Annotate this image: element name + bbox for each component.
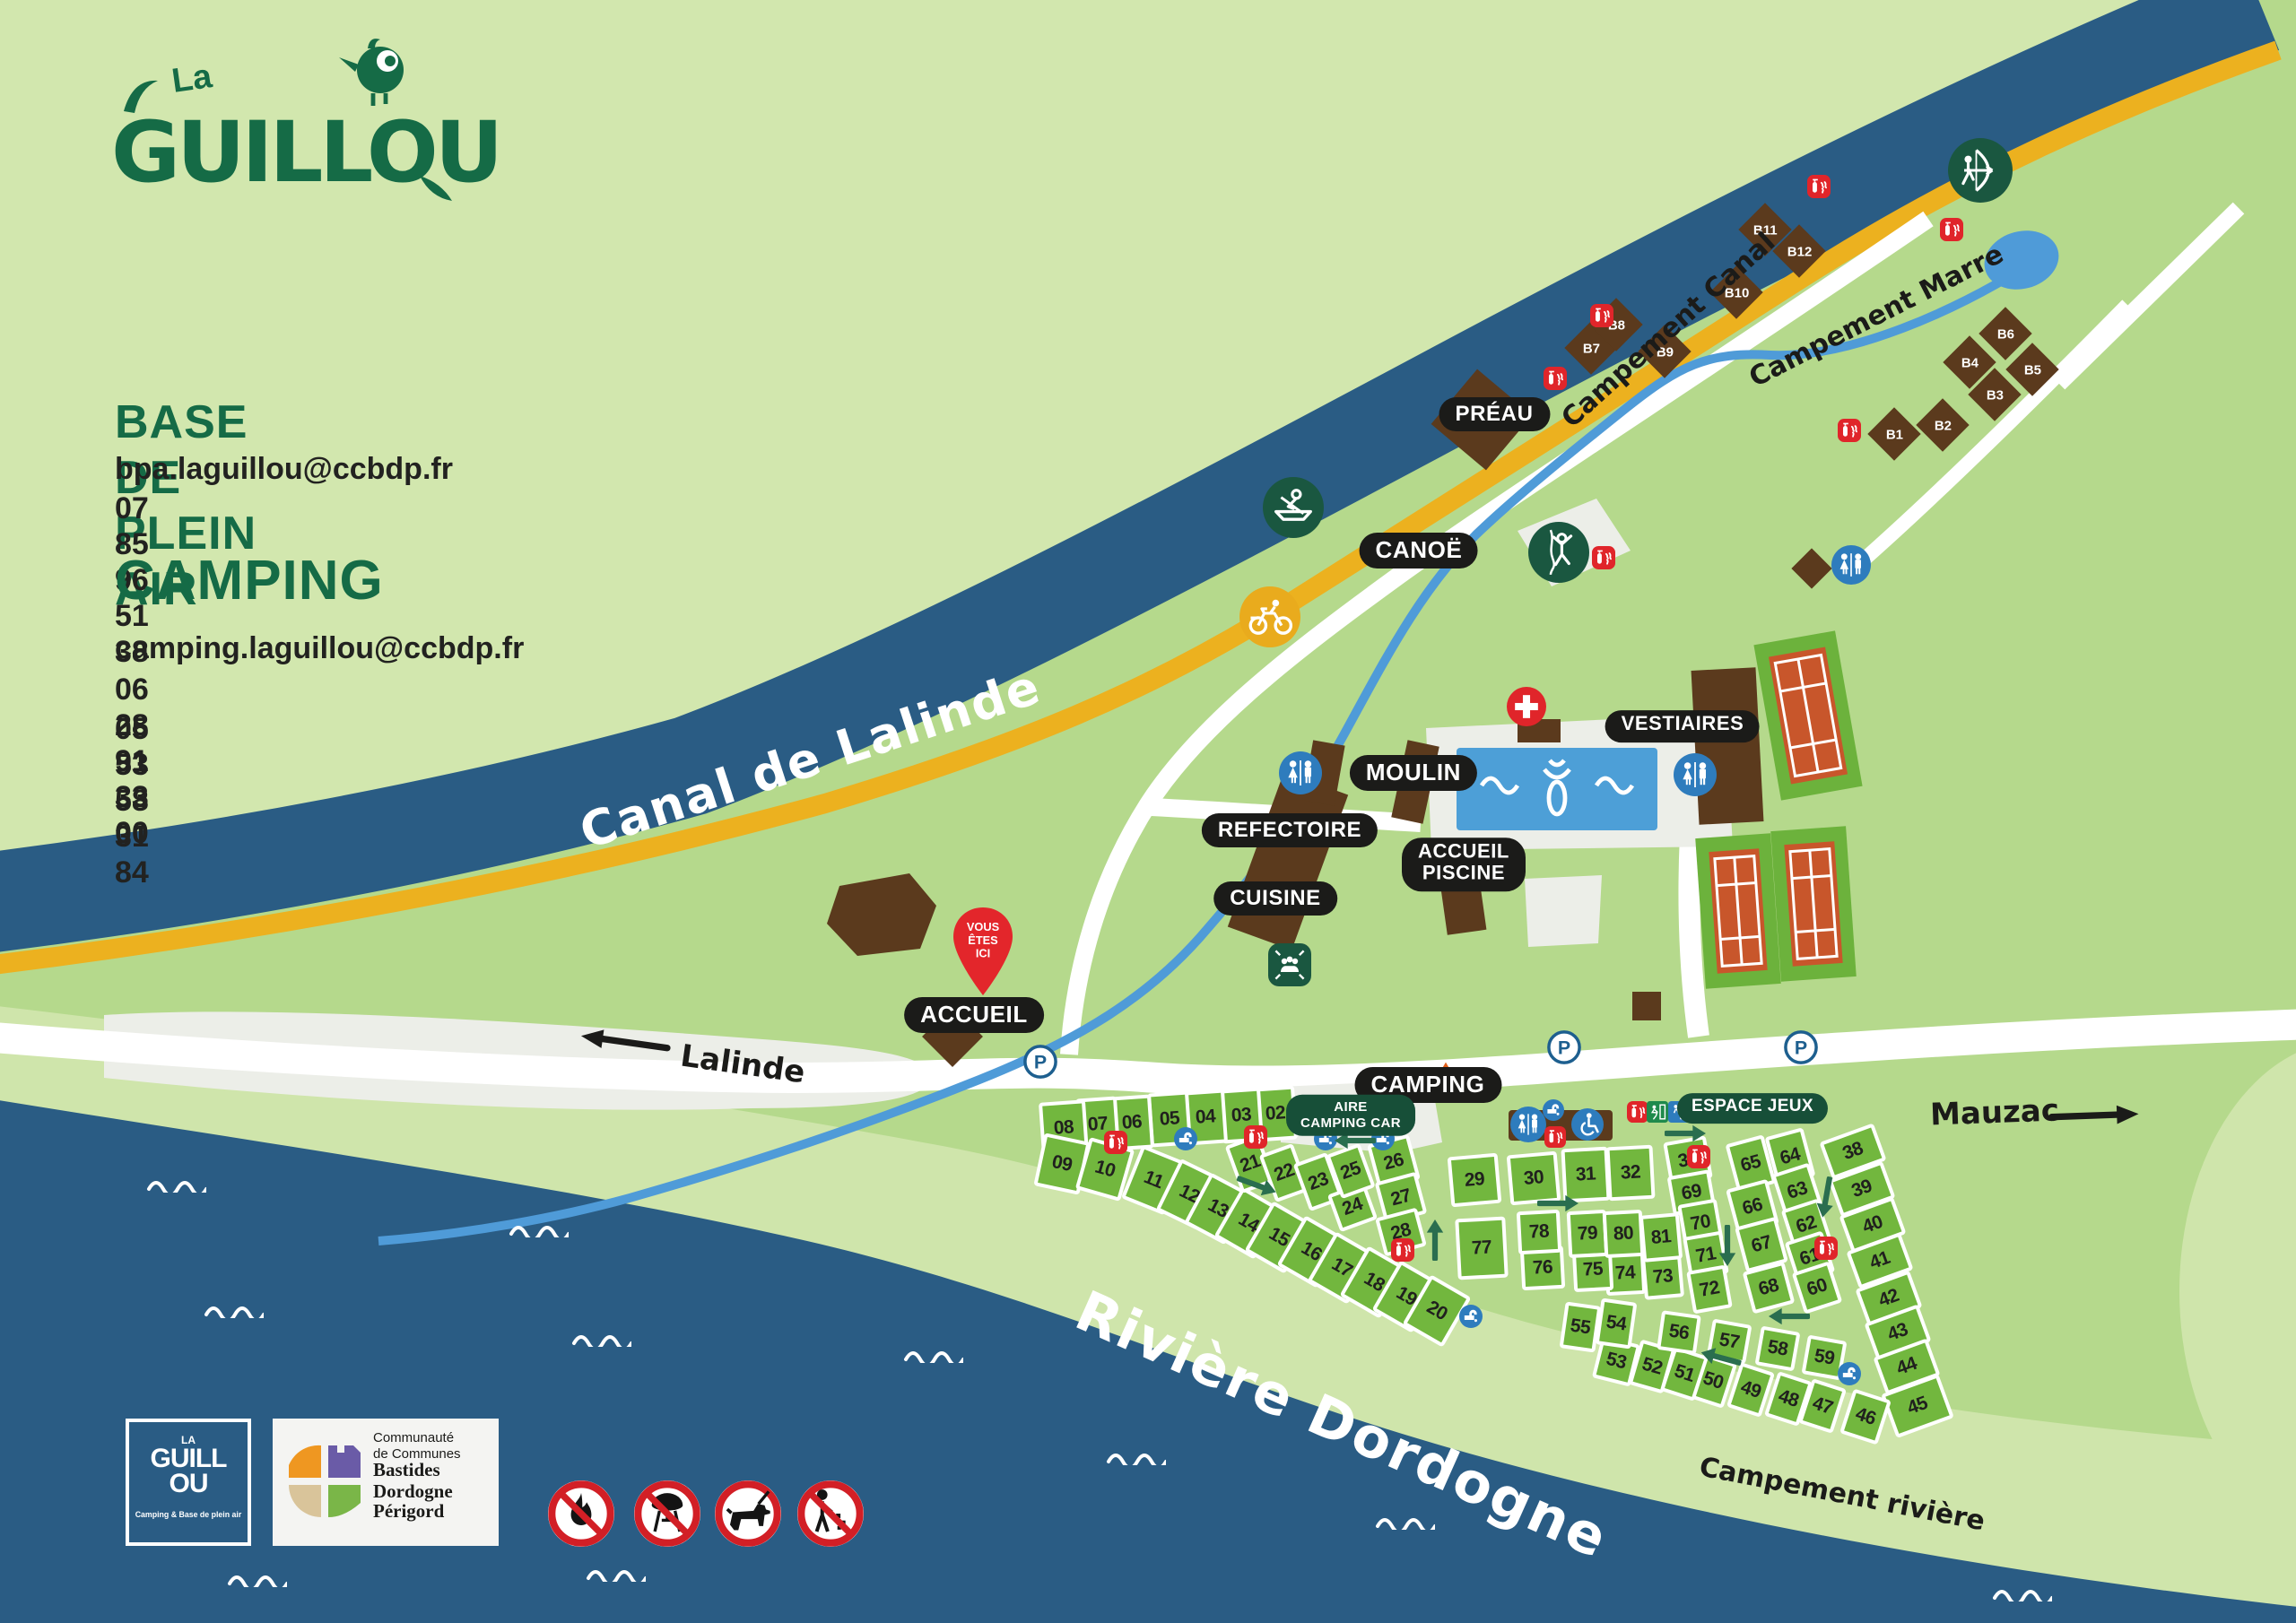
camping-plot-29: 29 xyxy=(1448,1153,1502,1208)
emergency-exit-icon xyxy=(1647,1101,1668,1123)
route-arrow xyxy=(1813,1175,1839,1220)
svg-text:ICI: ICI xyxy=(976,947,990,960)
fire-extinguisher-icon xyxy=(1544,367,1567,390)
route-arrow xyxy=(1665,1124,1708,1143)
plot-number: 45 xyxy=(1904,1393,1930,1419)
area-label: Campement rivière xyxy=(1697,1450,1987,1537)
plot-number: 51 xyxy=(1672,1360,1698,1387)
banner-espace-jeux: ESPACE JEUX xyxy=(1677,1093,1828,1124)
fire-extinguisher-icon xyxy=(1391,1238,1414,1262)
camping-plot-32: 32 xyxy=(1605,1145,1655,1202)
svg-text:VOUS: VOUS xyxy=(967,920,1000,933)
direction-label: Lalinde xyxy=(678,1038,807,1091)
route-arrow xyxy=(1767,1306,1810,1326)
direction-arrow xyxy=(577,1024,673,1060)
fire-extinguisher-icon xyxy=(1807,175,1831,198)
svg-text:P: P xyxy=(1558,1037,1570,1059)
guillou-logo-tagline: Camping & Base de plein air xyxy=(129,1509,248,1518)
wc-icon xyxy=(1510,1107,1546,1142)
camping-plot-58: 58 xyxy=(1755,1326,1801,1372)
wave-mark xyxy=(1991,1584,2052,1601)
cycling-icon xyxy=(1239,586,1300,647)
pitch-number: B5 xyxy=(2023,361,2040,378)
camping-plot-54: 54 xyxy=(1596,1298,1638,1349)
fire-extinguisher-icon xyxy=(1244,1125,1267,1149)
plot-number: 10 xyxy=(1092,1156,1118,1182)
camping-plot-56: 56 xyxy=(1657,1310,1701,1355)
plot-number: 79 xyxy=(1577,1222,1597,1245)
pitch-number: B7 xyxy=(1582,340,1599,356)
ccbdp-text: Communauté de Communes Bastides Dordogne… xyxy=(373,1431,461,1524)
wave-mark xyxy=(585,1564,646,1582)
plot-number: 76 xyxy=(1532,1256,1552,1279)
wave-mark xyxy=(203,1300,264,1318)
pitch-number: B12 xyxy=(1787,243,1812,259)
archery-icon xyxy=(1948,138,2013,203)
bpa-email: bpa.laguillou@ccbdp.fr xyxy=(115,452,453,488)
fire-extinguisher-icon xyxy=(1627,1101,1648,1123)
plot-number: 44 xyxy=(1893,1353,1919,1380)
plot-number: 29 xyxy=(1464,1168,1485,1192)
water-tap-icon xyxy=(1174,1127,1197,1150)
plot-number: 43 xyxy=(1884,1319,1910,1346)
wc-icon xyxy=(1674,753,1717,796)
plot-number: 50 xyxy=(1700,1367,1726,1394)
plot-number: 80 xyxy=(1613,1222,1633,1245)
plot-number: 03 xyxy=(1231,1104,1252,1126)
route-arrow xyxy=(1425,1218,1445,1261)
ccbdp-line5: Périgord xyxy=(373,1504,461,1524)
plot-number: 47 xyxy=(1810,1393,1836,1419)
plot-number: 27 xyxy=(1388,1185,1413,1211)
plot-number: 60 xyxy=(1805,1274,1831,1301)
climbing-icon xyxy=(1528,522,1589,583)
ccbdp-line2: de Communes xyxy=(373,1446,461,1462)
water-label: Canal de Lalinde xyxy=(574,660,1048,862)
direction-label: Mauzac xyxy=(1929,1094,2059,1134)
ccbdp-line1: Communauté xyxy=(373,1431,461,1446)
plot-number: 40 xyxy=(1859,1211,1885,1238)
plot-number: 59 xyxy=(1813,1345,1836,1369)
wave-mark xyxy=(570,1329,631,1347)
communaute-communes-logo: Communauté de Communes Bastides Dordogne… xyxy=(273,1419,499,1546)
svg-text:P: P xyxy=(1034,1052,1047,1073)
plot-number: 70 xyxy=(1689,1211,1712,1235)
plot-number: 26 xyxy=(1381,1150,1406,1176)
label-cuisine: CUISINE xyxy=(1213,881,1337,916)
camping-plot-77: 77 xyxy=(1455,1217,1508,1280)
camping-plot-55: 55 xyxy=(1560,1301,1602,1352)
meeting-point-icon xyxy=(1268,943,1311,986)
plot-number: 39 xyxy=(1848,1176,1874,1202)
plot-number: 73 xyxy=(1652,1265,1674,1289)
plot-number: 46 xyxy=(1853,1403,1879,1430)
parking-icon: P xyxy=(1023,1045,1057,1079)
label-accueil: ACCUEIL xyxy=(904,997,1044,1033)
wave-mark xyxy=(1374,1512,1435,1530)
you-are-here-pin: VOUS ÊTES ICI xyxy=(951,907,1015,997)
plot-number: 77 xyxy=(1471,1237,1492,1259)
fire-extinguisher-icon xyxy=(1838,419,1861,442)
plot-number: 66 xyxy=(1740,1194,1765,1220)
label-pr-au: PRÉAU xyxy=(1439,397,1549,431)
rowing-icon xyxy=(1263,477,1324,538)
plot-number: 58 xyxy=(1766,1336,1789,1360)
map-overlay: 0203040506070809101112131415161718192021… xyxy=(0,0,2296,1623)
fire-extinguisher-icon xyxy=(1590,304,1613,327)
plot-number: 42 xyxy=(1875,1285,1901,1312)
camping-email: camping.laguillou@ccbdp.fr xyxy=(115,631,524,667)
svg-text:P: P xyxy=(1795,1037,1807,1059)
no-littering-icon xyxy=(797,1480,864,1547)
plot-number: 55 xyxy=(1569,1315,1591,1340)
camping-plot-72: 72 xyxy=(1686,1265,1733,1315)
plot-number: 31 xyxy=(1575,1163,1596,1185)
plot-number: 49 xyxy=(1738,1376,1764,1403)
label-refectoire: REFECTOIRE xyxy=(1202,813,1378,847)
plot-number: 09 xyxy=(1050,1151,1074,1176)
label-vestiaires: VESTIAIRES xyxy=(1605,710,1761,742)
camping-plot-78: 78 xyxy=(1517,1210,1561,1254)
water-tap-icon xyxy=(1543,1099,1564,1121)
wave-mark xyxy=(1105,1447,1166,1465)
route-arrow xyxy=(1537,1193,1580,1213)
no-barbecue-icon xyxy=(634,1480,700,1547)
plot-number: 75 xyxy=(1582,1258,1603,1280)
plot-number: 72 xyxy=(1698,1277,1721,1301)
plot-number: 20 xyxy=(1422,1297,1450,1325)
plot-number: 38 xyxy=(1839,1138,1865,1165)
camping-plot-80: 80 xyxy=(1603,1210,1645,1258)
plot-number: 23 xyxy=(1305,1168,1331,1195)
water-tap-icon xyxy=(1838,1362,1861,1385)
fire-extinguisher-icon xyxy=(1940,218,1963,241)
handicap-icon xyxy=(1571,1108,1604,1141)
fire-extinguisher-icon xyxy=(1592,546,1615,569)
label-cano-: CANOË xyxy=(1360,533,1479,568)
plot-number: 52 xyxy=(1639,1353,1665,1379)
plot-number: 74 xyxy=(1614,1262,1635,1284)
plot-number: 71 xyxy=(1694,1243,1718,1267)
pitch-number: B1 xyxy=(1885,426,1902,442)
wave-mark xyxy=(226,1569,287,1587)
plot-number: 78 xyxy=(1528,1220,1549,1243)
ccbdp-line4: Dordogne xyxy=(373,1483,461,1504)
parking-icon: P xyxy=(1784,1030,1818,1064)
plot-number: 54 xyxy=(1605,1312,1627,1336)
label-moulin: MOULIN xyxy=(1350,755,1477,791)
wc-icon xyxy=(1831,545,1871,585)
guillou-logo-line2: OU xyxy=(129,1473,248,1499)
camping-phone-2: 05 53 58 31 84 xyxy=(115,712,149,891)
water-label: Rivière Dordogne xyxy=(1066,1280,1618,1573)
plot-number: 41 xyxy=(1866,1247,1892,1274)
camp-pitch-B1: B1 xyxy=(1867,407,1920,460)
plot-number: 48 xyxy=(1776,1385,1802,1412)
pitch-number: B2 xyxy=(1934,417,1951,433)
pitch-number: B3 xyxy=(1986,386,2003,403)
banner-aire-camping-car: AIRE CAMPING CAR xyxy=(1286,1095,1415,1137)
fire-extinguisher-icon xyxy=(1814,1237,1838,1260)
plot-number: 11 xyxy=(1141,1167,1166,1193)
wc-icon xyxy=(1279,751,1322,794)
plot-number: 81 xyxy=(1650,1226,1672,1249)
route-arrow xyxy=(1718,1225,1737,1268)
dog-on-leash-icon xyxy=(715,1480,781,1547)
ccbdp-line3: Bastides xyxy=(373,1462,461,1483)
wave-mark xyxy=(902,1345,963,1363)
water-tap-icon xyxy=(1459,1305,1483,1328)
plot-number: 56 xyxy=(1667,1321,1690,1345)
plot-number: 30 xyxy=(1523,1167,1544,1190)
plot-number: 02 xyxy=(1265,1102,1286,1124)
camping-plot-81: 81 xyxy=(1639,1212,1683,1263)
plot-number: 04 xyxy=(1195,1106,1216,1128)
wave-mark xyxy=(145,1175,206,1193)
pitch-number: B4 xyxy=(1961,354,1978,370)
camp-pitch-B2: B2 xyxy=(1916,398,1969,451)
parking-icon: P xyxy=(1547,1030,1581,1064)
bird-icon xyxy=(332,32,414,111)
plot-number: 25 xyxy=(1337,1158,1363,1185)
svg-text:ÊTES: ÊTES xyxy=(968,933,998,947)
plot-number: 65 xyxy=(1738,1151,1763,1177)
plot-number: 53 xyxy=(1604,1349,1628,1375)
plot-number: 32 xyxy=(1620,1161,1640,1184)
wave-mark xyxy=(508,1219,569,1237)
tail-swoosh-icon xyxy=(416,172,456,204)
pitch-number: B6 xyxy=(1996,325,2013,342)
fire-extinguisher-icon xyxy=(1104,1131,1127,1154)
plot-number: 67 xyxy=(1749,1232,1774,1258)
no-fire-icon xyxy=(548,1480,614,1547)
guillou-footer-logo: LA GUILL OU Camping & Base de plein air xyxy=(126,1419,251,1546)
camping-title: CAMPING xyxy=(115,549,384,613)
first-aid-icon xyxy=(1507,687,1546,726)
plot-number: 63 xyxy=(1785,1177,1811,1204)
plot-number: 68 xyxy=(1756,1275,1781,1301)
fire-extinguisher-icon xyxy=(1687,1145,1710,1168)
fire-extinguisher-icon xyxy=(1544,1126,1566,1148)
campsite-map: 0203040506070809101112131415161718192021… xyxy=(0,0,2296,1623)
label-accueil-piscine: ACCUEIL PISCINE xyxy=(1402,838,1526,891)
ccbdp-emblem-icon xyxy=(287,1444,362,1519)
direction-arrow xyxy=(2048,1102,2143,1129)
brand-la: La xyxy=(170,58,214,103)
